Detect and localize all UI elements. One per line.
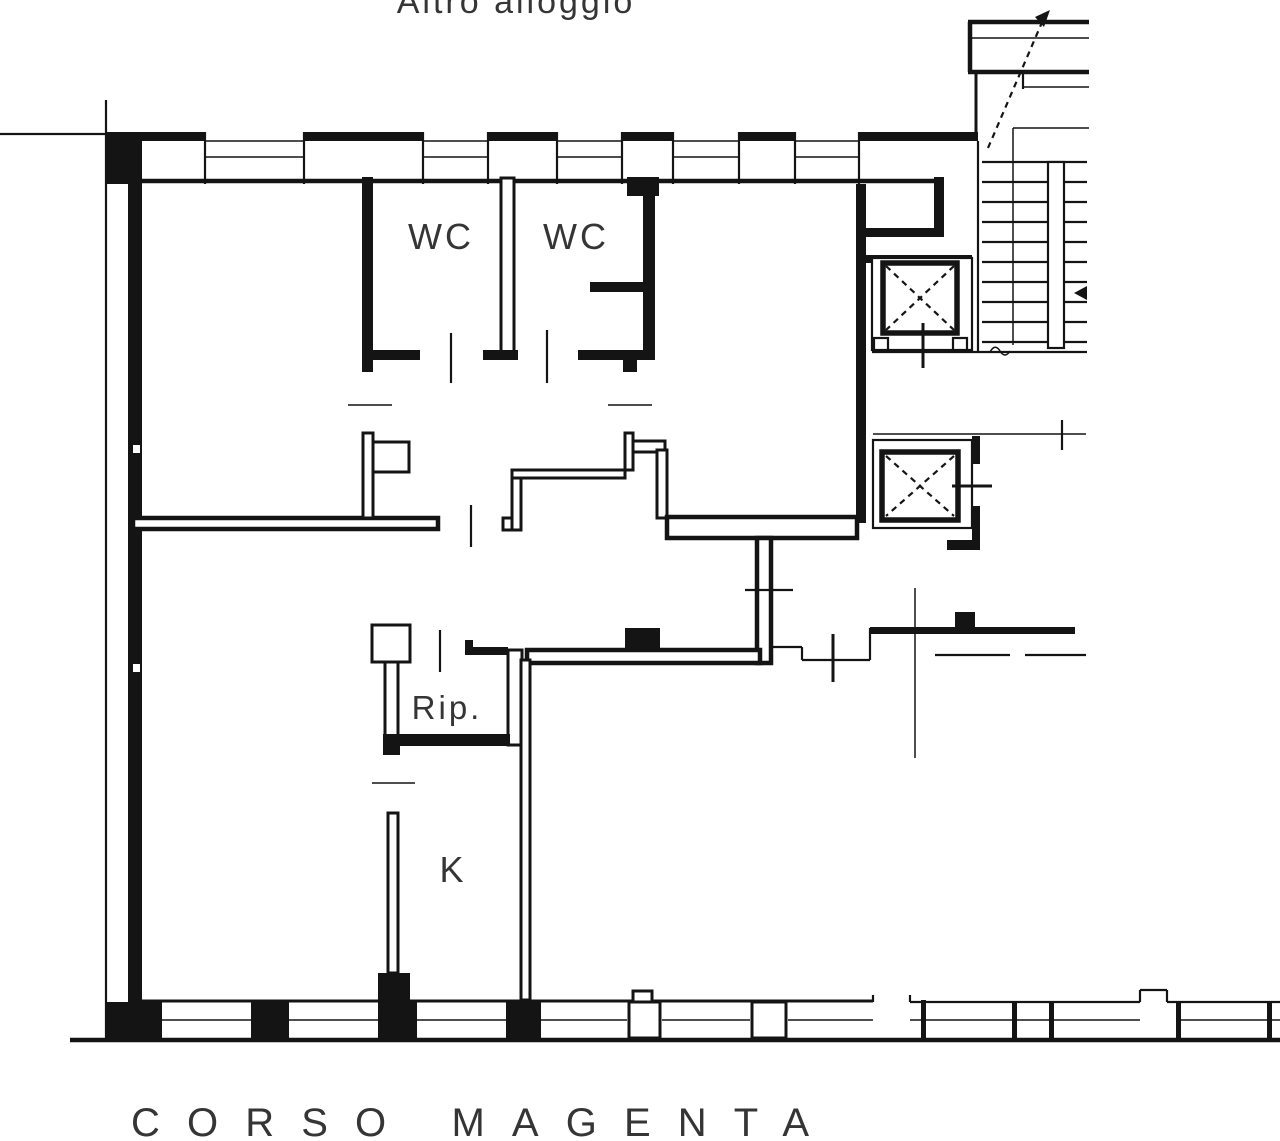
floor-plan-page: Altro alloggio WC WC Rip. K CORSO MAGENT… [0,0,1280,1141]
entry-walls [772,588,1086,758]
floor-plan-drawing: Altro alloggio WC WC Rip. K CORSO MAGENT… [0,0,1280,1141]
wc1-label: WC [408,216,474,257]
top-exterior-wall [106,132,978,184]
stair-stringer [1048,162,1064,348]
site-boundary-lines [0,100,106,1042]
bottom-wall-piers [106,991,1272,1040]
stair-treads [982,162,1087,342]
storage-kitchen-walls [372,625,530,1002]
street-label: CORSO MAGENTA [131,1101,809,1141]
adjacent-unit-label: Altro alloggio [397,0,636,21]
bottom-exterior-wall [70,990,1280,1040]
arrowhead-icon [1074,286,1087,300]
storage-label: Rip. [412,689,483,726]
left-exterior-wall [106,132,142,1002]
kitchen-label: K [439,849,466,890]
central-interior-walls [133,433,857,663]
staircase [968,10,1089,348]
elevator-shaft-lower [873,420,1086,550]
text-labels: Altro alloggio WC WC Rip. K CORSO MAGENT… [131,0,809,1141]
stair-direction-arrow [988,20,1043,148]
wc-partition-walls [348,177,659,405]
arrowhead-icon [1035,10,1050,27]
wc2-label: WC [543,216,609,257]
